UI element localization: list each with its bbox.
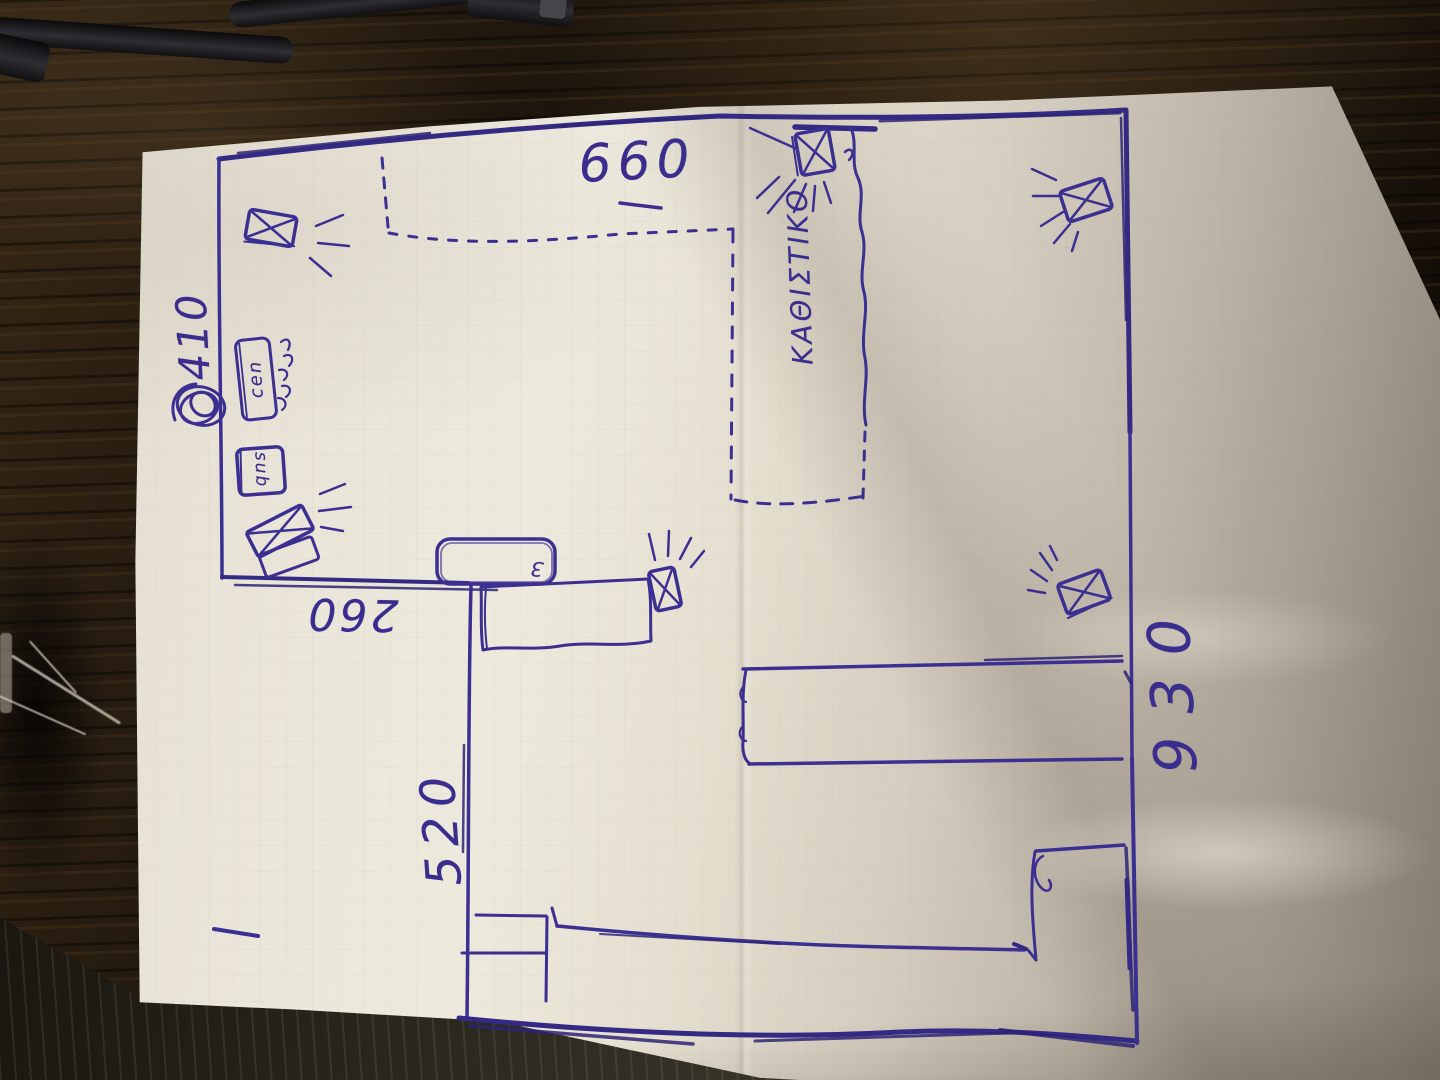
speaker-top-right-icon	[1032, 169, 1113, 251]
dim-top-label: 660	[577, 129, 697, 195]
speaker-front-left-icon	[246, 484, 351, 578]
dim-660-underline	[620, 203, 661, 208]
room-walls	[219, 110, 1137, 1046]
sound-wave-arcs	[278, 340, 292, 410]
sound-wave-rays	[649, 531, 704, 567]
speaker-center-icon	[648, 531, 704, 611]
tv-unit	[481, 579, 651, 650]
subwoofer-label: sub	[250, 451, 271, 488]
speaker-top-left-icon	[244, 209, 349, 276]
sound-wave-rays	[1032, 169, 1078, 251]
low-cabinet-line	[552, 908, 1026, 950]
floorplan-ink-drawing	[0, 0, 1440, 1080]
photo-floorplan-sketch: 660 410 260 520 930 ΚΑΘΙΣΤΙΚΟ cen sub 3	[0, 0, 1440, 1080]
sound-wave-rays	[1028, 546, 1057, 593]
sound-wave-rays	[310, 215, 349, 276]
stray-ink-mark	[214, 929, 258, 936]
cabinet-mark-label: 3	[530, 556, 545, 581]
closet-box	[462, 915, 547, 1001]
sofa	[740, 656, 1122, 764]
sound-wave-rays	[319, 484, 351, 531]
dim-lower-left-label: 520	[409, 766, 473, 888]
speaker-right-icon	[1028, 546, 1113, 618]
center-speaker-label: cen	[244, 359, 268, 399]
dim-middle-label: 260	[305, 588, 399, 641]
room-label: ΚΑΘΙΣΤΙΚΟ	[780, 186, 819, 365]
dim-left-label: 410	[166, 290, 220, 382]
dim-right-label: 930	[1133, 595, 1210, 775]
armchair	[1028, 845, 1124, 960]
